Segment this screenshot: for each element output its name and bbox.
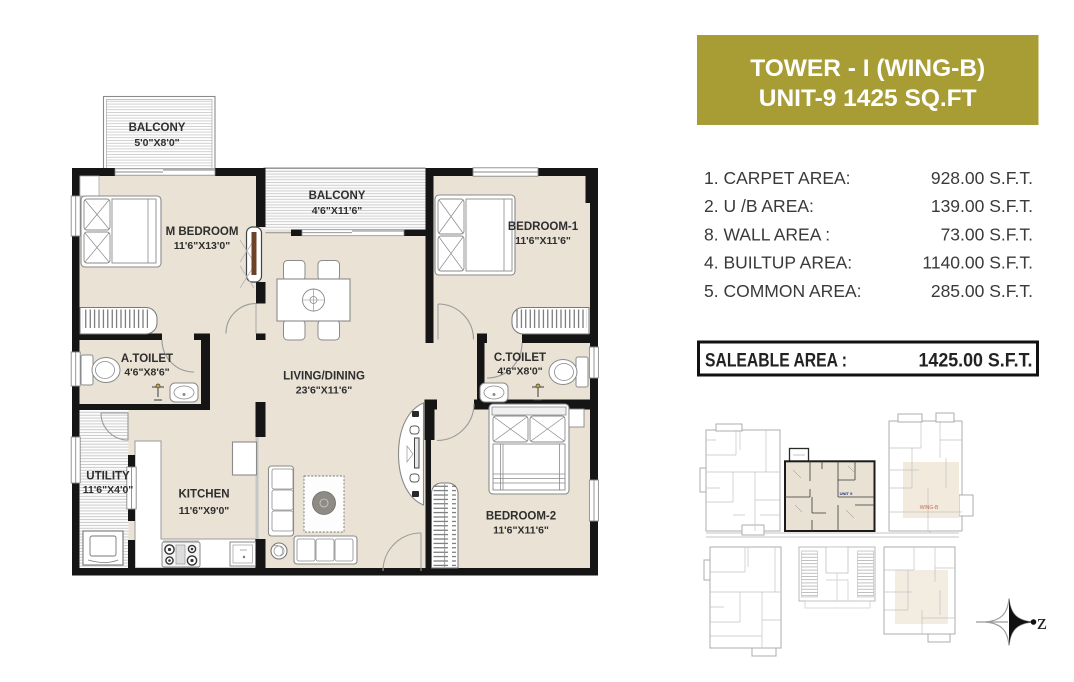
svg-text:TOWER - I (WING-B): TOWER - I (WING-B) (750, 55, 985, 82)
svg-text:M BEDROOM: M BEDROOM (166, 226, 239, 238)
svg-text:UTILITY: UTILITY (86, 471, 130, 483)
svg-text:1140.00 S.F.T.: 1140.00 S.F.T. (922, 253, 1033, 273)
svg-text:z: z (1037, 609, 1047, 634)
svg-text:C.TOILET: C.TOILET (494, 352, 546, 364)
svg-text:UNIT-9 1425 SQ.FT: UNIT-9 1425 SQ.FT (759, 85, 977, 112)
svg-text:4'6"X8'0": 4'6"X8'0" (497, 366, 542, 378)
svg-text:BALCONY: BALCONY (309, 190, 366, 202)
svg-text:4. BUILTUP AREA:: 4. BUILTUP AREA: (704, 253, 852, 273)
svg-text:BEDROOM-2: BEDROOM-2 (486, 511, 556, 523)
svg-text:139.00 S.F.T.: 139.00 S.F.T. (931, 196, 1033, 216)
svg-text:11'6"X4'0": 11'6"X4'0" (83, 484, 134, 496)
svg-text:285.00 S.F.T.: 285.00 S.F.T. (931, 281, 1033, 301)
svg-text:73.00 S.F.T.: 73.00 S.F.T. (941, 224, 1033, 244)
svg-text:1. CARPET AREA:: 1. CARPET AREA: (704, 168, 851, 188)
svg-text:4'6"X8'6": 4'6"X8'6" (124, 367, 169, 379)
svg-text:A.TOILET: A.TOILET (121, 353, 173, 365)
svg-text:2. U /B AREA:: 2. U /B AREA: (704, 196, 814, 216)
svg-text:8. WALL AREA :: 8. WALL AREA : (704, 224, 830, 244)
svg-text:SALEABLE AREA :: SALEABLE AREA : (705, 350, 847, 372)
svg-text:UNIT 9: UNIT 9 (840, 491, 853, 496)
svg-text:4'6"X11'6": 4'6"X11'6" (312, 205, 363, 217)
svg-text:WING-B: WING-B (920, 505, 939, 511)
svg-text:11'6"X9'0": 11'6"X9'0" (179, 505, 230, 517)
svg-text:11'6"X11'6": 11'6"X11'6" (493, 525, 549, 537)
svg-text:KITCHEN: KITCHEN (178, 489, 229, 501)
svg-text:1425.00 S.F.T.: 1425.00 S.F.T. (919, 350, 1033, 372)
svg-text:LIVING/DINING: LIVING/DINING (283, 371, 365, 383)
svg-text:11'6"X13'0": 11'6"X13'0" (174, 240, 230, 252)
svg-text:23'6"X11'6": 23'6"X11'6" (296, 385, 352, 397)
svg-text:BEDROOM-1: BEDROOM-1 (508, 221, 579, 233)
svg-text:5'0"X8'0": 5'0"X8'0" (134, 137, 179, 149)
svg-text:5. COMMON AREA:: 5. COMMON AREA: (704, 281, 862, 301)
svg-text:928.00 S.F.T.: 928.00 S.F.T. (931, 168, 1033, 188)
svg-text:BALCONY: BALCONY (129, 122, 186, 134)
svg-text:11'6"X11'6": 11'6"X11'6" (515, 235, 571, 247)
